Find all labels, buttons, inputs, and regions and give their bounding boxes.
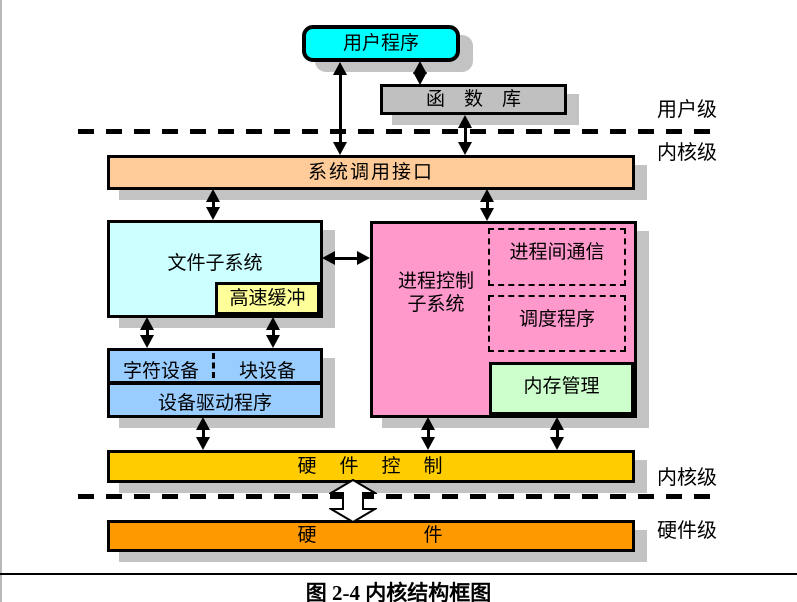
arrow-syscall-process-control-icon [480, 189, 494, 221]
arrow-driver-hwcontrol-icon [196, 417, 210, 450]
buffer-cache-box: 高速缓冲 [215, 282, 320, 315]
user-program-box: 用户程序 [302, 25, 460, 62]
file-subsystem-box: 文件子系统 高速缓冲 [107, 220, 323, 318]
process-control-label-line1: 进程控制 [381, 270, 491, 293]
arrow-file-char-device-icon [140, 317, 154, 348]
syscall-interface-bar: 系统调用接口 [107, 155, 635, 190]
kernel-level-bottom-label: 内核级 [657, 461, 717, 490]
memory-management-label: 内存管理 [523, 376, 599, 397]
char-device-label: 字符设备 [110, 356, 212, 383]
hardware-control-label: 硬 件 控 制 [297, 456, 444, 477]
process-control-label-line2: 子系统 [381, 293, 491, 316]
kernel-hardware-separator-line [78, 494, 718, 499]
figure-caption: 图 2-4 内核结构框图 [0, 577, 797, 602]
user-level-label: 用户级 [657, 93, 717, 122]
kernel-structure-diagram: 用户级 内核级 内核级 硬件级 用户程序 函 数 库 系统调用接口 文件子系统 … [0, 0, 797, 602]
process-control-label: 进程控制 子系统 [381, 270, 491, 316]
ipc-box: 进程间通信 [488, 228, 626, 286]
user-program-label: 用户程序 [343, 33, 419, 54]
syscall-interface-label: 系统调用接口 [308, 162, 434, 183]
device-box: 字符设备 块设备 设备驱动程序 [107, 348, 323, 418]
user-kernel-separator-line [78, 129, 718, 134]
arrow-memory-hwcontrol-icon [550, 417, 564, 450]
function-library-box: 函 数 库 [380, 84, 567, 115]
kernel-level-top-label: 内核级 [657, 136, 717, 165]
hardware-level-label: 硬件级 [657, 514, 717, 543]
function-library-label: 函 数 库 [426, 89, 521, 110]
arrow-process-hwcontrol-icon [421, 417, 435, 450]
caption-rule [0, 573, 797, 575]
hardware-label: 硬 件 [297, 525, 444, 546]
page-left-border [0, 0, 2, 602]
process-control-subsystem-box: 进程控制 子系统 进程间通信 调度程序 内存管理 [370, 221, 637, 418]
hardware-bar: 硬 件 [107, 520, 635, 552]
memory-management-box: 内存管理 [489, 362, 634, 415]
buffer-cache-label: 高速缓冲 [229, 288, 305, 309]
arrow-syscall-file-subsystem-icon [206, 189, 220, 220]
ipc-label: 进程间通信 [509, 242, 604, 263]
device-horizontal-divider [110, 381, 320, 385]
arrow-user-program-library-icon [413, 61, 427, 85]
arrow-file-process-icon [322, 251, 370, 265]
arrow-cache-block-device-icon [266, 317, 280, 348]
arrow-user-program-syscall-icon [333, 62, 347, 155]
scheduler-box: 调度程序 [488, 295, 626, 352]
scheduler-label: 调度程序 [519, 309, 595, 330]
file-subsystem-label: 文件子系统 [110, 248, 320, 275]
device-driver-label: 设备驱动程序 [110, 388, 320, 415]
block-device-label: 块设备 [215, 356, 320, 383]
hardware-interface-block-arrow-icon [329, 479, 377, 523]
arrow-library-syscall-icon [458, 115, 472, 155]
